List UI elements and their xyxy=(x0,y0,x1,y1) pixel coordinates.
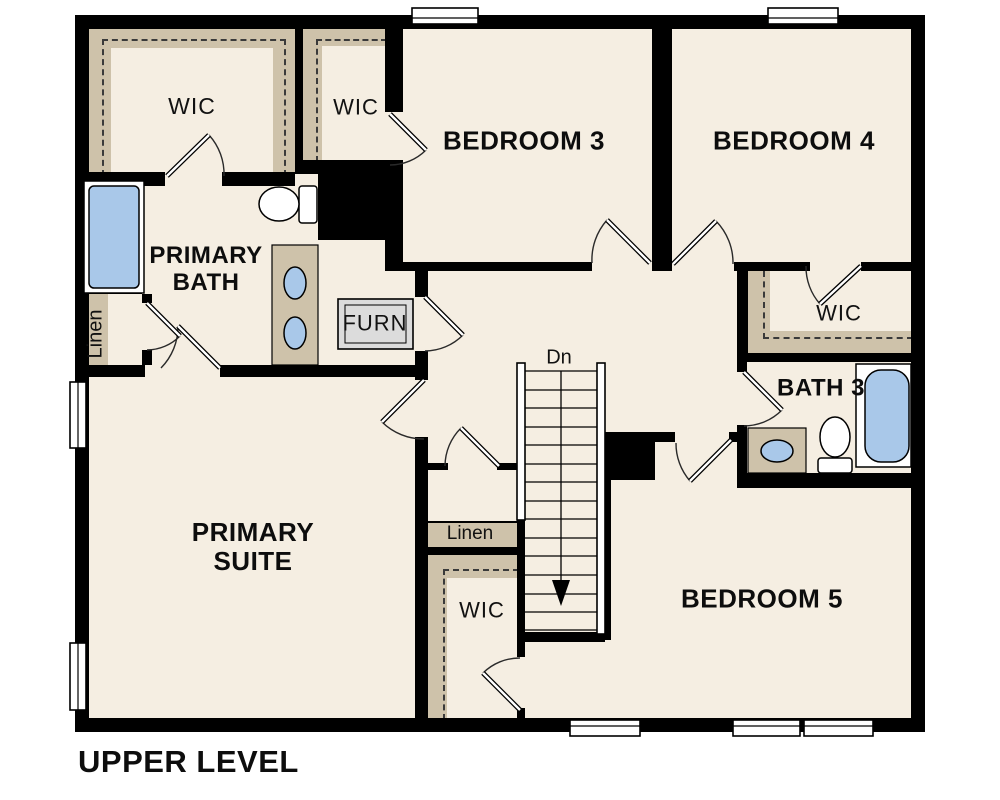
room-label-bedroom3: BEDROOM 3 xyxy=(443,126,605,155)
room-label-wic-bedroom4: WIC xyxy=(816,301,862,324)
window xyxy=(804,720,873,736)
window xyxy=(733,720,800,736)
door xyxy=(445,428,499,466)
room-label-wic-primary: WIC xyxy=(168,94,216,118)
plan-title: UPPER LEVEL xyxy=(78,744,299,780)
door xyxy=(390,114,426,165)
stairs-down-arrow xyxy=(552,580,570,606)
door xyxy=(592,220,650,263)
toilet-icon xyxy=(818,417,852,473)
room-label-wic-bedroom5: WIC xyxy=(459,598,505,621)
room-label-primary-suite: PRIMARY SUITE xyxy=(163,518,343,576)
door xyxy=(167,135,224,176)
room-label-primary-bath: PRIMARY BATH xyxy=(131,243,281,297)
stairs-down-label: Dn xyxy=(546,348,572,369)
door xyxy=(382,380,424,439)
window xyxy=(570,720,640,736)
door xyxy=(147,303,180,350)
door xyxy=(161,326,220,368)
room-label-bath3: BATH 3 xyxy=(777,376,865,403)
room-label-linen-bath: Linen xyxy=(86,310,107,359)
floor-plan: WIC WIC BEDROOM 3 BEDROOM 4 PRIMARY BATH… xyxy=(0,0,1000,800)
window xyxy=(768,8,838,24)
door xyxy=(483,658,520,710)
room-label-bedroom4: BEDROOM 4 xyxy=(713,126,875,155)
room-label-bedroom5: BEDROOM 5 xyxy=(681,584,843,613)
room-label-wic-bedroom3: WIC xyxy=(333,95,379,118)
window xyxy=(412,8,478,24)
room-label-furnace: FURN xyxy=(342,311,407,334)
toilet-icon xyxy=(259,186,317,223)
window xyxy=(70,643,86,710)
door xyxy=(425,297,463,351)
room-label-linen-hall: Linen xyxy=(447,524,494,544)
door xyxy=(806,266,861,304)
window xyxy=(70,382,86,448)
vanity-sink-icon xyxy=(748,428,806,473)
door xyxy=(676,440,731,481)
stairs xyxy=(517,363,605,634)
door xyxy=(673,221,733,264)
